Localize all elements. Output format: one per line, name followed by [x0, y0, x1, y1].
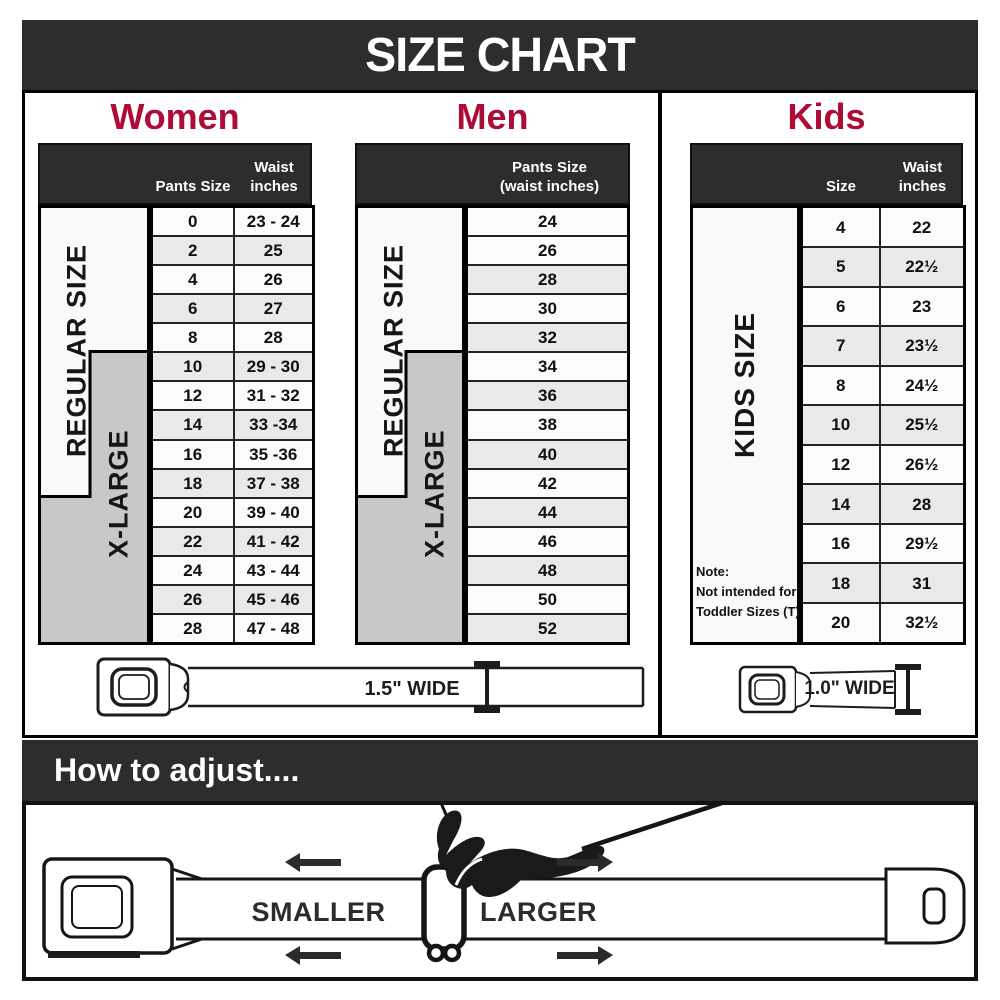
table-row: 422 [802, 207, 965, 248]
pants-size-cell: 4 [152, 265, 234, 294]
size-cell: 4 [802, 207, 880, 248]
adjust-heading: How to adjust.... [54, 752, 299, 789]
pants-size-cell: 28 [152, 614, 234, 644]
women-col-pants-size: Pants Size [152, 177, 234, 196]
table-row: 723½ [802, 326, 965, 366]
men-table-header: Pants Size (waist inches) [355, 143, 630, 205]
waist-cell: 26½ [880, 445, 965, 485]
waist-cell: 39 - 40 [234, 498, 314, 527]
table-row: 52 [467, 614, 629, 644]
size-cell: 12 [802, 445, 880, 485]
size-cell: 5 [802, 247, 880, 287]
table-row: 828 [152, 323, 314, 352]
smaller-label: SMALLER [246, 897, 391, 928]
kids-heading: Kids [690, 96, 963, 138]
table-row: 2241 - 42 [152, 527, 314, 556]
waist-cell: 35 -36 [234, 440, 314, 469]
waist-cell: 32½ [880, 603, 965, 644]
waist-cell: 29½ [880, 524, 965, 564]
pants-size-cell: 2 [152, 236, 234, 265]
larger-label: LARGER [466, 897, 611, 928]
waist-cell: 22 [880, 207, 965, 248]
table-row: 623 [802, 287, 965, 327]
seatbelt-buckle-icon [98, 659, 188, 715]
size-cell: 16 [802, 524, 880, 564]
women-col-waist: Waist inches [234, 158, 314, 196]
pants-size-cell: 38 [467, 410, 629, 439]
pants-size-cell: 28 [467, 265, 629, 294]
pants-size-cell: 26 [152, 585, 234, 614]
table-row: 1629½ [802, 524, 965, 564]
table-row: 28 [467, 265, 629, 294]
waist-cell: 33 -34 [234, 410, 314, 439]
table-row: 32 [467, 323, 629, 352]
table-row: 225 [152, 236, 314, 265]
pants-size-cell: 24 [152, 556, 234, 585]
page-title: SIZE CHART [365, 28, 635, 83]
waist-cell: 25½ [880, 405, 965, 445]
waist-cell: 23 [880, 287, 965, 327]
waist-cell: 47 - 48 [234, 614, 314, 644]
title-bar: SIZE CHART [22, 20, 978, 90]
table-row: 2847 - 48 [152, 614, 314, 644]
pants-size-cell: 8 [152, 323, 234, 352]
table-row: 26 [467, 236, 629, 265]
adjust-illustration-box [22, 801, 978, 981]
pants-size-cell: 42 [467, 469, 629, 498]
pants-size-cell: 6 [152, 294, 234, 323]
kids-size-table: 422 522½ 623 723½ 824½ 1025½ 1226½ 1428 … [800, 205, 966, 645]
pants-size-cell: 0 [152, 207, 234, 237]
table-row: 44 [467, 498, 629, 527]
table-row: 38 [467, 410, 629, 439]
table-row: 1428 [802, 484, 965, 524]
table-row: 1231 - 32 [152, 381, 314, 410]
table-row: 36 [467, 381, 629, 410]
table-row: 34 [467, 352, 629, 381]
kids-size-label: KIDS SIZE [718, 205, 772, 565]
waist-cell: 23½ [880, 326, 965, 366]
table-row: 48 [467, 556, 629, 585]
women-table-header: Pants Size Waist inches [38, 143, 312, 205]
men-col-pants-size: Pants Size (waist inches) [467, 158, 632, 196]
kids-table-header: Size Waist inches [690, 143, 963, 205]
pants-size-cell: 20 [152, 498, 234, 527]
men-size-table: 24 26 28 30 32 34 36 38 40 42 44 46 48 5… [465, 205, 630, 645]
pants-size-cell: 26 [467, 236, 629, 265]
hand-icon [437, 810, 605, 897]
waist-cell: 25 [234, 236, 314, 265]
waist-cell: 31 - 32 [234, 381, 314, 410]
size-chart-page: SIZE CHART Women Men Kids Pants Size Wai… [0, 0, 1000, 1000]
pants-size-cell: 48 [467, 556, 629, 585]
kids-col-waist: Waist inches [880, 158, 965, 196]
pants-size-cell: 52 [467, 614, 629, 644]
pants-size-cell: 32 [467, 323, 629, 352]
waist-cell: 26 [234, 265, 314, 294]
size-cell: 6 [802, 287, 880, 327]
table-row: 522½ [802, 247, 965, 287]
waist-cell: 22½ [880, 247, 965, 287]
table-row: 2039 - 40 [152, 498, 314, 527]
table-row: 46 [467, 527, 629, 556]
pants-size-cell: 46 [467, 527, 629, 556]
table-row: 30 [467, 294, 629, 323]
table-row: 2032½ [802, 603, 965, 644]
table-row: 023 - 24 [152, 207, 314, 237]
waist-cell: 27 [234, 294, 314, 323]
table-row: 1025½ [802, 405, 965, 445]
pants-size-cell: 14 [152, 410, 234, 439]
table-row: 40 [467, 440, 629, 469]
pants-size-cell: 22 [152, 527, 234, 556]
table-row: 50 [467, 585, 629, 614]
waist-cell: 28 [234, 323, 314, 352]
panel-divider [658, 93, 662, 735]
belt-tip [886, 869, 964, 943]
table-row: 1837 - 38 [152, 469, 314, 498]
pants-size-cell: 12 [152, 381, 234, 410]
pants-size-cell: 10 [152, 352, 234, 381]
table-row: 1635 -36 [152, 440, 314, 469]
table-row: 42 [467, 469, 629, 498]
waist-cell: 31 [880, 563, 965, 603]
pants-size-cell: 16 [152, 440, 234, 469]
table-row: 2443 - 44 [152, 556, 314, 585]
kids-col-size: Size [802, 177, 880, 196]
table-row: 824½ [802, 366, 965, 406]
size-cell: 8 [802, 366, 880, 406]
pants-size-cell: 34 [467, 352, 629, 381]
table-row: 426 [152, 265, 314, 294]
pants-size-cell: 18 [152, 469, 234, 498]
size-cell: 20 [802, 603, 880, 644]
size-cell: 14 [802, 484, 880, 524]
table-row: 24 [467, 207, 629, 237]
size-cell: 18 [802, 563, 880, 603]
table-row: 627 [152, 294, 314, 323]
waist-cell: 43 - 44 [234, 556, 314, 585]
men-heading: Men [355, 96, 630, 138]
table-row: 1029 - 30 [152, 352, 314, 381]
waist-cell: 37 - 38 [234, 469, 314, 498]
pants-size-cell: 24 [467, 207, 629, 237]
table-row: 1226½ [802, 445, 965, 485]
waist-cell: 28 [880, 484, 965, 524]
adjust-illustration [26, 805, 974, 977]
women-heading: Women [40, 96, 310, 138]
waist-cell: 23 - 24 [234, 207, 314, 237]
waist-cell: 41 - 42 [234, 527, 314, 556]
women-xlarge-label: X-LARGE [92, 351, 146, 636]
table-row: 2645 - 46 [152, 585, 314, 614]
waist-cell: 24½ [880, 366, 965, 406]
pants-size-cell: 30 [467, 294, 629, 323]
kids-note: Note: Not intended for Toddler Sizes (T) [696, 562, 802, 622]
waist-cell: 45 - 46 [234, 585, 314, 614]
waist-cell: 29 - 30 [234, 352, 314, 381]
size-cell: 10 [802, 405, 880, 445]
size-cell: 7 [802, 326, 880, 366]
pants-size-cell: 50 [467, 585, 629, 614]
adult-belt-width-label: 1.5" WIDE [347, 678, 477, 701]
pants-size-cell: 40 [467, 440, 629, 469]
width-measure-icon [474, 664, 500, 710]
pants-size-cell: 36 [467, 381, 629, 410]
seatbelt-buckle-icon [44, 859, 202, 958]
table-row: 1433 -34 [152, 410, 314, 439]
pants-size-cell: 44 [467, 498, 629, 527]
table-row: 1831 [802, 563, 965, 603]
men-xlarge-label: X-LARGE [408, 351, 462, 636]
women-size-table: 023 - 24 225 426 627 828 1029 - 30 1231 … [150, 205, 315, 645]
kids-belt-width-label: 1.0" WIDE [782, 678, 917, 700]
adjust-heading-bar: How to adjust.... [22, 740, 978, 801]
